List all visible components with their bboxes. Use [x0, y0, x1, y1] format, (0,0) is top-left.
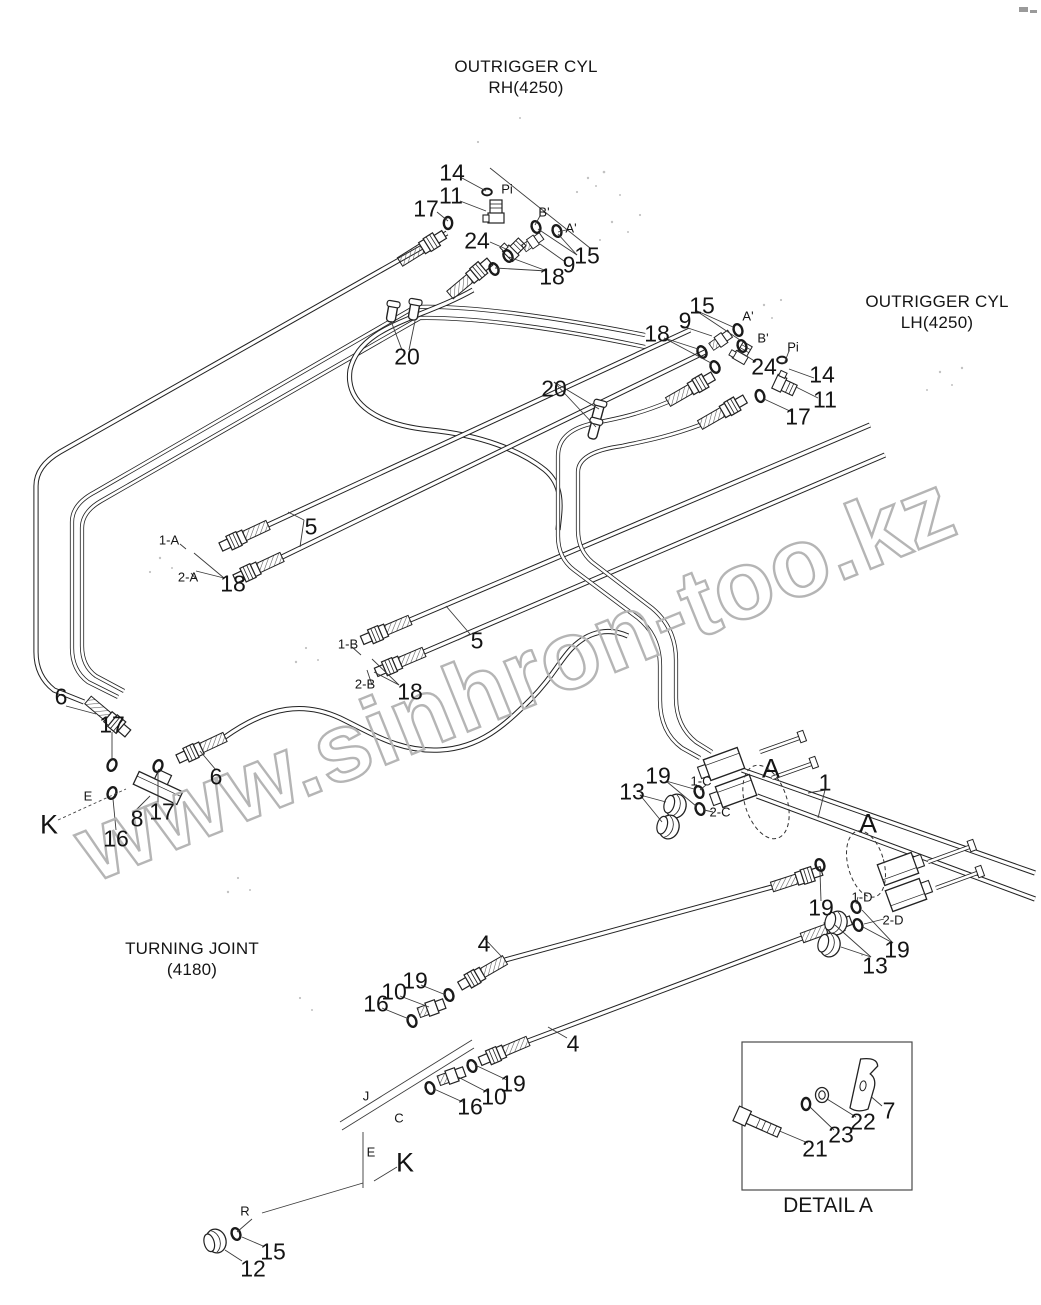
part-label-j: J	[363, 1089, 370, 1104]
part-label-21: 21	[802, 1136, 828, 1163]
part-label-bp: B'	[757, 331, 768, 346]
part-label-2-b: 2-B	[355, 677, 375, 692]
part-label-pi: Pi	[787, 340, 799, 355]
parts-diagram-page: www.sinhron-too.kz OUTRIGGER CYL RH(4250…	[0, 0, 1041, 1305]
part-label-ap: A'	[565, 221, 576, 236]
part-label-18: 18	[644, 321, 670, 348]
tube-assembly-cluster	[654, 730, 984, 959]
part-label-1-c: 1-C	[691, 774, 712, 789]
part-label-r: R	[240, 1204, 249, 1219]
title-turning-joint: TURNING JOINT (4180)	[102, 939, 282, 980]
part-label-4: 4	[478, 931, 491, 958]
title-turning-joint-line2: (4180)	[102, 960, 282, 981]
part-label-pi: Pi	[501, 182, 513, 197]
part-label-15: 15	[574, 243, 600, 270]
washer-22	[816, 1088, 829, 1103]
part-label-17: 17	[413, 196, 439, 223]
clamp-7	[850, 1057, 879, 1113]
title-outrigger-lh-line2: LH(4250)	[847, 313, 1027, 334]
part-label-a: A	[762, 754, 780, 785]
part-label-a: A	[859, 809, 877, 840]
title-outrigger-lh: OUTRIGGER CYL LH(4250)	[847, 292, 1027, 333]
part-label-20: 20	[541, 376, 567, 403]
part-label-9: 9	[679, 308, 692, 335]
part-label-e: E	[84, 789, 93, 804]
part-label-23: 23	[828, 1122, 854, 1149]
part-label-17: 17	[149, 799, 175, 826]
part-label-k: K	[396, 1148, 414, 1179]
part-label-18: 18	[220, 571, 246, 598]
part-label-6: 6	[55, 684, 68, 711]
part-label-18: 18	[397, 679, 423, 706]
part-label-10: 10	[481, 1084, 507, 1111]
part-label-2-a: 2-A	[178, 570, 198, 585]
bolt-21	[733, 1106, 782, 1140]
part-label-19: 19	[884, 937, 910, 964]
part-label-18: 18	[539, 264, 565, 291]
part-label-ap: A'	[742, 309, 753, 324]
title-outrigger-rh: OUTRIGGER CYL RH(4250)	[436, 57, 616, 98]
title-outrigger-lh-line1: OUTRIGGER CYL	[847, 292, 1027, 313]
title-outrigger-rh-line2: RH(4250)	[436, 78, 616, 99]
part-label-13: 13	[862, 953, 888, 980]
part-label-2-c: 2-C	[710, 805, 731, 820]
detail-a-caption: DETAIL A	[758, 1194, 898, 1218]
part-label-bp: B'	[538, 205, 549, 220]
part-label-1-a: 1-A	[159, 533, 179, 548]
part-label-19: 19	[645, 763, 671, 790]
part-label-7: 7	[883, 1098, 896, 1125]
part-label-16: 16	[103, 826, 129, 853]
part-label-11: 11	[813, 387, 837, 414]
title-turning-joint-line1: TURNING JOINT	[102, 939, 282, 960]
part-label-6: 6	[210, 764, 223, 791]
part-label-16: 16	[363, 991, 389, 1018]
part-label-19: 19	[808, 895, 834, 922]
part-label-16: 16	[457, 1094, 483, 1121]
part-label-22: 22	[850, 1109, 876, 1136]
left-tee-cluster	[106, 758, 187, 805]
part-label-11: 11	[439, 183, 463, 210]
part-label-12: 12	[240, 1256, 266, 1283]
part-label-1-b: 1-B	[338, 637, 358, 652]
part-label-e: E	[367, 1145, 376, 1160]
part-label-14: 14	[809, 362, 835, 389]
part-label-24: 24	[751, 354, 777, 381]
washer-23	[802, 1098, 810, 1110]
part-label-8: 8	[131, 806, 144, 833]
part-label-k: K	[40, 810, 58, 841]
part-label-15: 15	[689, 293, 715, 320]
part-label-4: 4	[567, 1031, 580, 1058]
part-label-17: 17	[99, 712, 125, 739]
part-label-24: 24	[464, 228, 490, 255]
part-label-5: 5	[305, 514, 318, 541]
part-label-1-d: 1-D	[852, 890, 873, 905]
part-label-2-d: 2-D	[883, 913, 904, 928]
part-label-1: 1	[819, 770, 832, 797]
part-label-20: 20	[394, 344, 420, 371]
part-label-17: 17	[785, 404, 811, 431]
part-label-c: C	[394, 1111, 403, 1126]
part-label-13: 13	[619, 779, 645, 806]
part-label-5: 5	[471, 628, 484, 655]
logo-fragment	[1019, 7, 1037, 13]
title-outrigger-rh-line1: OUTRIGGER CYL	[436, 57, 616, 78]
